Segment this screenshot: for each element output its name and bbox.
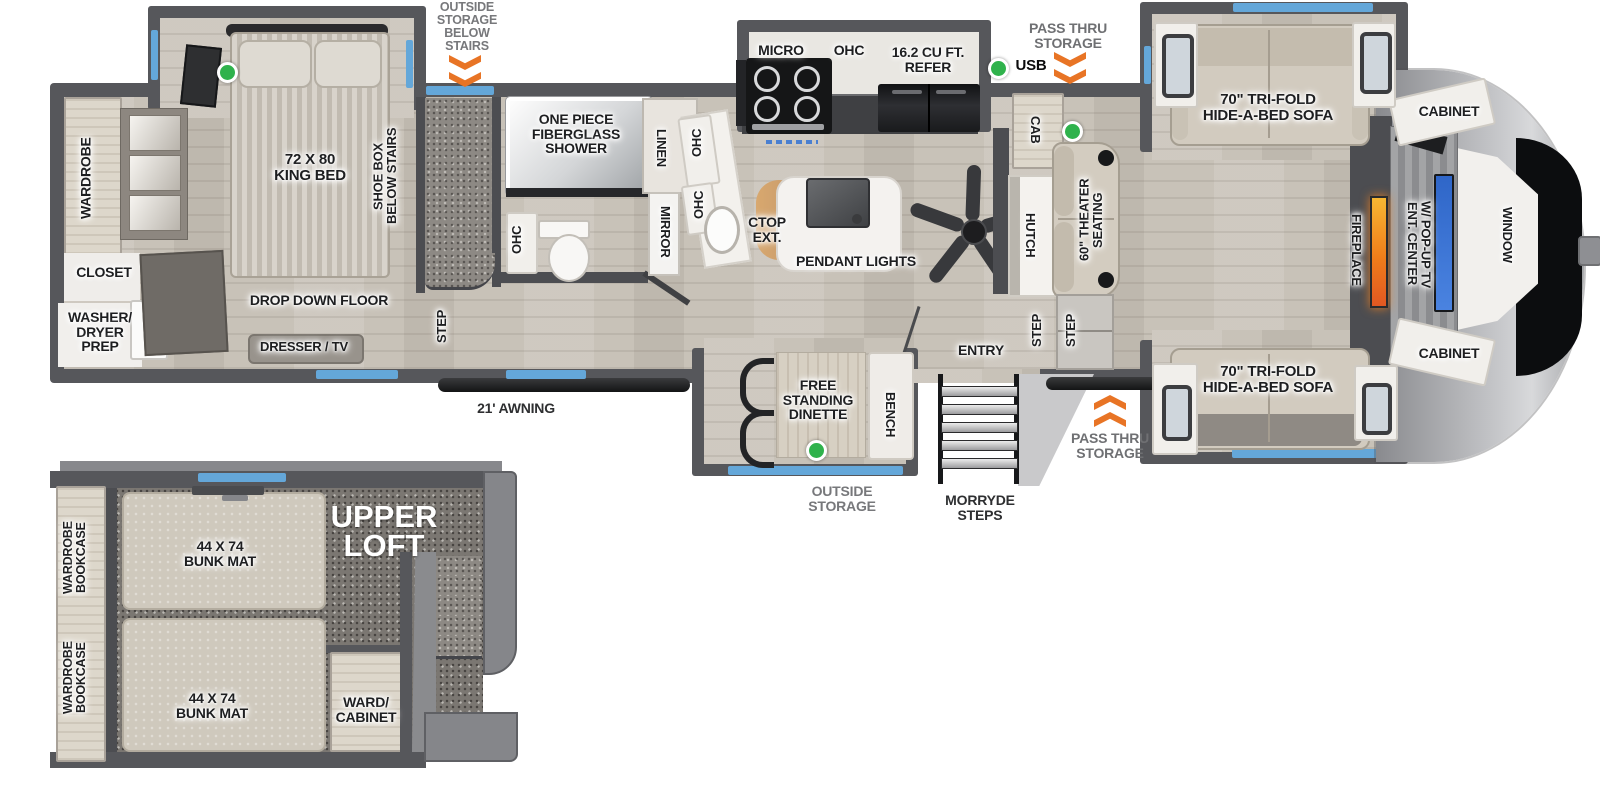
wardrobe-label: WARDROBE — [72, 128, 100, 228]
cup-holder — [1098, 150, 1114, 166]
green-indicator-bedroom — [217, 62, 238, 83]
window-above-stairs — [426, 86, 494, 95]
bedroom-slide-window-right — [406, 40, 413, 88]
loft-bottom-wall — [50, 752, 426, 768]
pass-thru-top-label: PASS THRU STORAGE — [1026, 20, 1110, 52]
bedroom-slide-window-left — [151, 30, 158, 80]
king-bed-label: 72 X 80 KING BED — [255, 148, 365, 188]
step-label-stairs: STEP — [430, 298, 454, 354]
burner — [754, 66, 780, 92]
chevron-icon — [449, 55, 481, 70]
cabinet-top-label: CABINET — [1406, 101, 1492, 121]
sofa-top-end-table-right — [1352, 22, 1396, 108]
stove — [746, 58, 832, 134]
washer-dryer-label: WASHER/ DRYER PREP — [58, 306, 142, 358]
wardrobe-bookcase1-label: WARDROBE BOOKCASE — [58, 510, 92, 606]
fridge-divider — [928, 84, 930, 132]
entry-label: ENTRY — [950, 340, 1012, 360]
bedroom-tv — [180, 44, 222, 107]
ohc-label-mid: OHC — [688, 184, 710, 226]
burner — [794, 96, 820, 122]
cabinet-bottom-label: CABINET — [1406, 343, 1492, 363]
awning-label: 21' AWNING — [458, 398, 574, 418]
stair-tread — [425, 253, 495, 290]
sofa-top-window-strip — [1233, 3, 1373, 12]
ent-center-label: ENT. CENTER W/ POP-UP TV — [1398, 184, 1440, 304]
stair-tread — [425, 129, 492, 163]
step-rung — [941, 458, 1018, 469]
outside-storage-bottom-label: OUTSIDE STORAGE — [806, 482, 878, 516]
chevron-icon — [1094, 395, 1126, 410]
ohc-kitchen-label: OHC — [828, 41, 870, 59]
morryde-steps-label: MORRYDE STEPS — [936, 490, 1024, 526]
awning-bar — [438, 378, 690, 392]
bunk2-label: 44 X 74 BUNK MAT — [152, 686, 272, 726]
chevron-icon — [1094, 412, 1126, 427]
toilet-bowl — [548, 234, 590, 282]
green-indicator-dinette — [806, 440, 827, 461]
chevron-icon — [1054, 52, 1086, 67]
loft-bunk1-latch — [192, 486, 264, 495]
burner — [754, 96, 780, 122]
dinette-window-strip — [728, 466, 903, 475]
dinette-label: FREE STANDING DINETTE — [768, 372, 868, 428]
window-bottom-wall — [506, 370, 586, 379]
step-rung — [941, 422, 1018, 433]
bedroom-tv-dresser-slab — [139, 250, 228, 356]
bedroom-dresser — [120, 108, 188, 240]
loft-bunk1-handle — [222, 495, 248, 501]
fireplace-insert — [1370, 196, 1388, 308]
chevron-up-pass-thru-bottom — [1094, 395, 1126, 427]
stove-vent — [752, 124, 824, 130]
drawer — [129, 115, 181, 151]
stair-tread — [425, 191, 492, 225]
wardrobe-bookcase2-label: WARDROBE BOOKCASE — [58, 630, 92, 726]
fridge-handle — [936, 90, 966, 94]
pass-thru-bottom-label: PASS THRU STORAGE — [1066, 430, 1154, 462]
fireplace-label: FIREPLACE — [1344, 194, 1368, 306]
window-label: WINDOW — [1494, 196, 1520, 274]
shoe-box-label: SHOE BOX BELOW STAIRS — [362, 120, 408, 232]
sofa-top-window-left — [1144, 46, 1151, 84]
rv-floorplan: OUTSIDE STORAGE BELOW STAIRS WARDROBE 72… — [0, 0, 1600, 806]
stairs-left-wall — [416, 97, 425, 293]
stair-tread — [425, 222, 492, 256]
step-rung — [941, 404, 1018, 415]
chevron-icon — [449, 72, 481, 87]
awning-bar-right — [1046, 377, 1158, 390]
island-faucet — [852, 214, 862, 224]
stove-blue-lights — [766, 140, 818, 144]
hutch-label: HUTCH — [1018, 203, 1042, 267]
dresser-tv-label: DRESSER / TV — [249, 337, 359, 357]
sofa-bottom-end-table-right — [1354, 365, 1398, 441]
pillow — [238, 40, 312, 88]
window-bottom-wall — [316, 370, 398, 379]
sofa-top-label: 70" TRI-FOLD HIDE-A-BED SOFA — [1178, 88, 1358, 128]
theater-seating-label: 60" THEATER SEATING — [1070, 166, 1112, 274]
outside-storage-below-stairs-label: OUTSIDE STORAGE BELOW STAIRS — [424, 0, 510, 54]
pillow — [314, 40, 382, 88]
pendant-lights-label: PENDANT LIGHTS — [786, 252, 926, 270]
fridge-handle — [892, 90, 922, 94]
green-indicator-cab — [1062, 121, 1083, 142]
fan-blade — [965, 165, 981, 221]
sofa-bottom-label: 70" TRI-FOLD HIDE-A-BED SOFA — [1178, 360, 1358, 400]
loft-bunk2 — [122, 618, 326, 752]
drawer — [129, 195, 181, 231]
burner — [794, 66, 820, 92]
ward-cabinet-label: WARD/ CABINET — [326, 690, 406, 730]
loft-outer-wall — [483, 471, 517, 675]
ctop-ext-label: CTOP EXT. — [740, 212, 794, 248]
chevron-down-pass-thru-top — [1054, 52, 1086, 84]
bench-label: BENCH — [878, 382, 902, 448]
window — [1360, 32, 1392, 94]
loft-window-strip — [198, 473, 286, 482]
hitch-pin — [1578, 236, 1600, 266]
linen-label: LINEN — [650, 120, 672, 176]
cup-holder — [1098, 272, 1114, 288]
cab-label: CAB — [1024, 106, 1046, 154]
green-indicator-usb — [988, 58, 1009, 79]
sofa-bottom-window-strip — [1232, 449, 1377, 458]
step-rung — [941, 386, 1018, 397]
step2-label: STEP — [1060, 304, 1082, 356]
loft-stair-tread — [436, 636, 482, 659]
chevron-down-outside-storage — [449, 55, 481, 87]
drop-down-floor-label: DROP DOWN FLOOR — [243, 290, 395, 310]
bunk1-label: 44 X 74 BUNK MAT — [160, 534, 280, 574]
step1-label: STEP — [1026, 304, 1048, 356]
drawer — [129, 155, 181, 191]
ohc-label-toilet: OHC — [506, 214, 528, 266]
mirror-label: MIRROR — [654, 194, 676, 270]
fan-hub — [961, 219, 987, 245]
window — [1362, 383, 1392, 435]
range-hood-strip — [736, 60, 746, 126]
refer-label: 16.2 CU FT. REFER — [882, 43, 974, 77]
upper-loft-label: UPPER LOFT — [328, 498, 440, 564]
chevron-icon — [1054, 69, 1086, 84]
hutch-back-wall — [993, 128, 1009, 294]
shower-glass — [506, 188, 652, 197]
micro-label: MICRO — [752, 41, 810, 59]
stair-tread — [425, 98, 492, 132]
loft-landing — [424, 712, 518, 762]
stair-tread — [425, 160, 492, 194]
refrigerator — [878, 84, 980, 132]
step-rung — [941, 440, 1018, 451]
closet-label: CLOSET — [66, 262, 142, 282]
shower-label: ONE PIECE FIBERGLASS SHOWER — [512, 108, 640, 160]
ohc-label-top: OHC — [686, 120, 708, 166]
usb-label: USB — [1010, 56, 1052, 76]
